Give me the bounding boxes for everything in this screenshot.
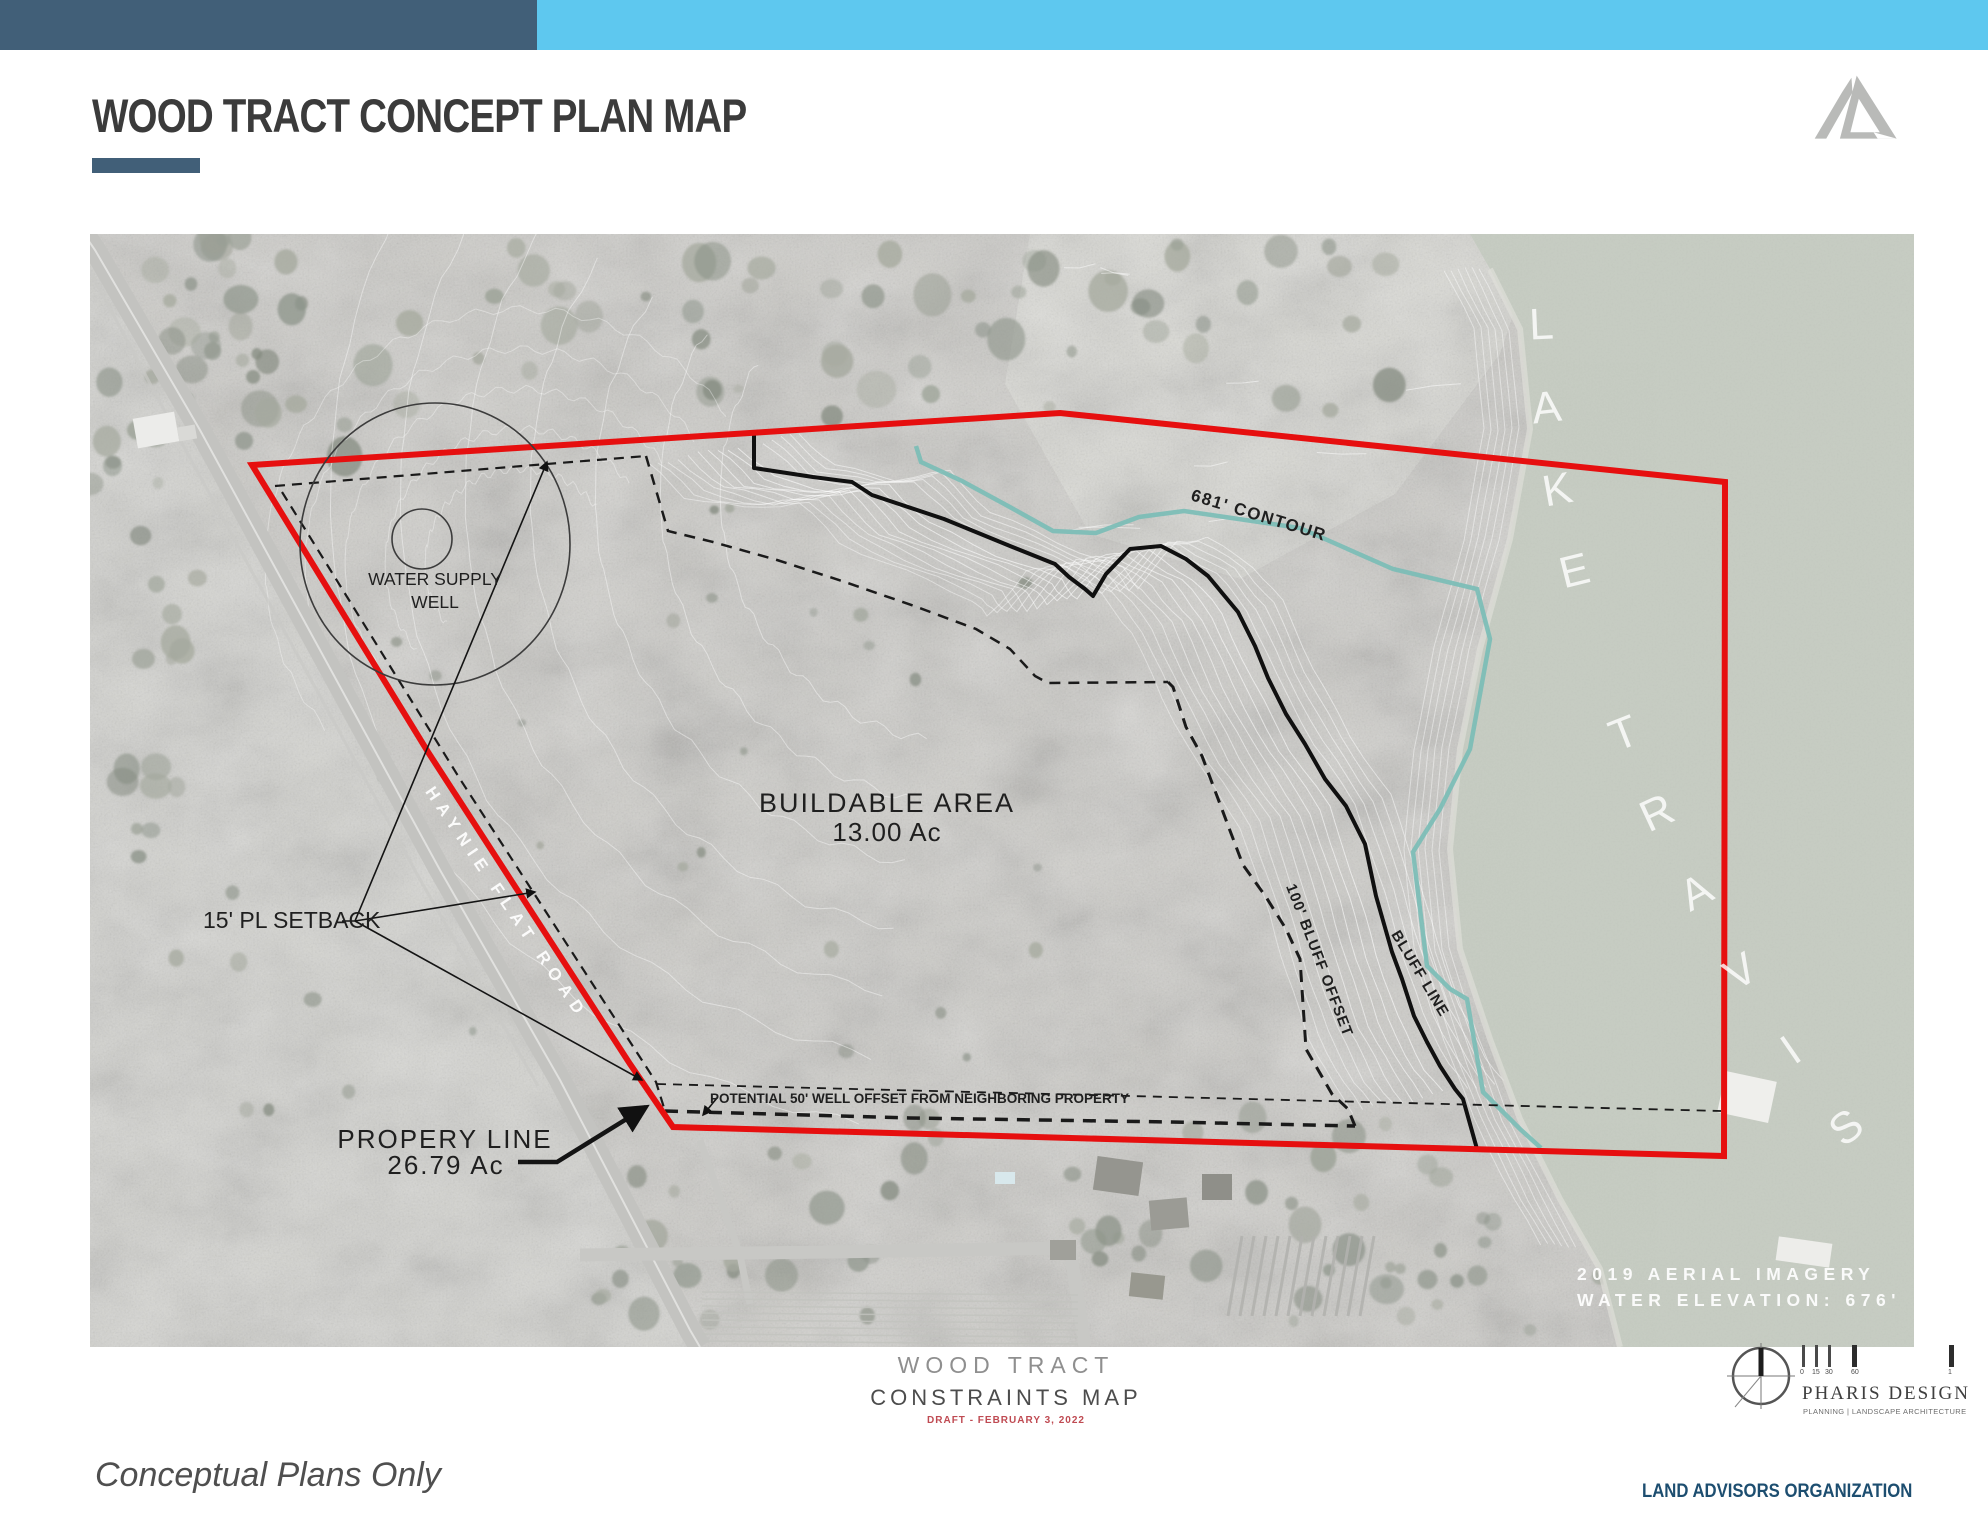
pharis-design-name: PHARIS DESIGN <box>1802 1383 1970 1405</box>
pharis-design-tagline: PLANNING | LANDSCAPE ARCHITECTURE <box>1803 1407 1967 1416</box>
title-underline <box>92 158 200 173</box>
scale-bar: 0 15 30 60 1 <box>1802 1345 1988 1379</box>
label-water-elevation: WATER ELEVATION: 676' <box>1577 1290 1901 1310</box>
conceptual-plans-disclaimer: Conceptual Plans Only <box>95 1456 441 1495</box>
label-well: WELL <box>411 592 459 612</box>
concept-plan-page: WOOD TRACT CONCEPT PLAN MAP <box>0 0 1988 1536</box>
label-buildable-area: BUILDABLE AREA <box>759 788 1015 818</box>
title-block-name: WOOD TRACT <box>806 1352 1206 1379</box>
pool <box>995 1172 1015 1184</box>
scale-tick: 30 <box>1825 1369 1833 1376</box>
building <box>1149 1197 1189 1230</box>
label-buildable-acres: 13.00 Ac <box>832 817 941 847</box>
building <box>1093 1156 1143 1196</box>
pharis-design-block: 0 15 30 60 1 PHARIS DESIGN PLANNING | LA… <box>1726 1341 1988 1441</box>
header-bar-light <box>537 0 1988 50</box>
building <box>1202 1174 1232 1200</box>
scale-tick: 60 <box>1851 1369 1859 1376</box>
land-advisors-logo-icon <box>1800 66 1905 144</box>
aerial-map: WATER SUPPLY WELL 681' CONTOUR BUILDABLE… <box>90 234 1914 1347</box>
title-block-draft-date: DRAFT - FEBRUARY 3, 2022 <box>806 1415 1206 1426</box>
page-title: WOOD TRACT CONCEPT PLAN MAP <box>92 88 746 143</box>
scale-tick: 0 <box>1800 1369 1804 1376</box>
map-title-block: WOOD TRACT CONSTRAINTS MAP DRAFT - FEBRU… <box>806 1352 1206 1426</box>
label-water-supply: WATER SUPPLY <box>368 569 502 589</box>
land-advisors-wordmark: LAND ADVISORS ORGANIZATION <box>1642 1481 1906 1503</box>
lake-travis-letter: A <box>1529 382 1564 434</box>
scale-tick: 1 <box>1948 1369 1952 1376</box>
label-property-acres: 26.79 Ac <box>387 1150 504 1180</box>
title-block-type: CONSTRAINTS MAP <box>806 1385 1206 1411</box>
label-setback: 15' PL SETBACK <box>203 907 381 933</box>
scale-tick: 15 <box>1812 1369 1820 1376</box>
north-compass-icon <box>1726 1341 1798 1413</box>
lake-travis-letter: L <box>1528 300 1555 350</box>
label-well-offset: POTENTIAL 50' WELL OFFSET FROM NEIGHBORI… <box>710 1091 1129 1106</box>
header-bar-dark <box>0 0 537 50</box>
label-aerial-imagery: 2019 AERIAL IMAGERY <box>1577 1264 1875 1284</box>
